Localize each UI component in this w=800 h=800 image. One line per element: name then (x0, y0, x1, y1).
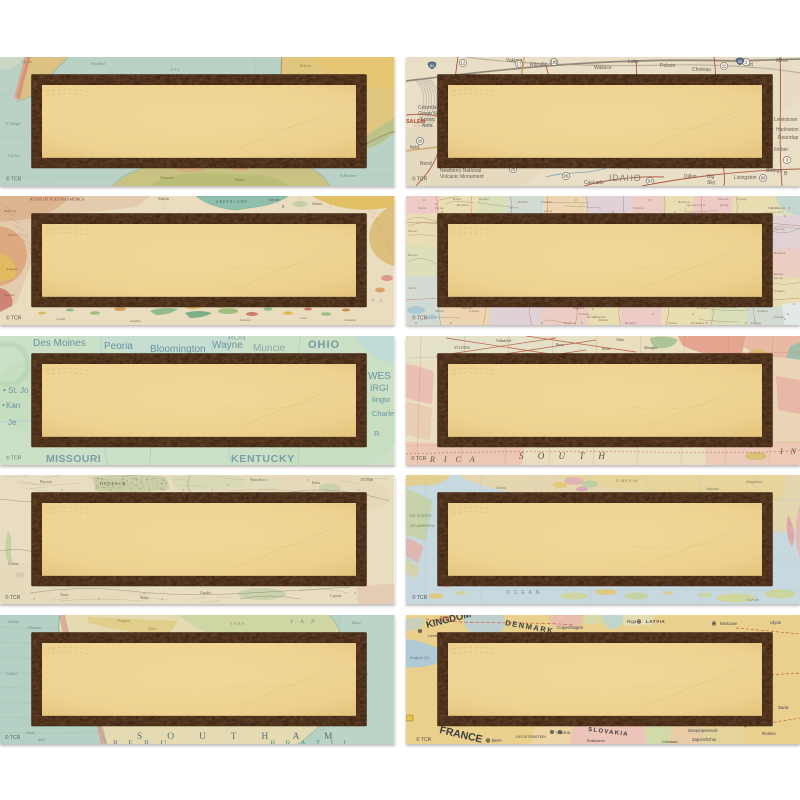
svg-text:Ft.Sask: Ft.Sask (579, 312, 589, 316)
svg-text:Qu Ap: Qu Ap (774, 276, 783, 280)
svg-text:Brandon: Brandon (564, 321, 576, 325)
svg-text:Dakar: Dakar (300, 63, 311, 68)
svg-text:Muncie: Muncie (253, 343, 286, 354)
svg-text:ED STATES: ED STATES (410, 513, 432, 518)
svg-text:Choteau: Choteau (692, 67, 711, 73)
svg-text:Selkirk: Selkirk (598, 318, 608, 322)
svg-text:Portage: Portage (737, 197, 748, 201)
svg-text:A T L: A T L (169, 67, 180, 72)
svg-text:Dnepropetrovsk: Dnepropetrovsk (688, 728, 718, 733)
svg-text:Callao: Callao (8, 153, 21, 158)
svg-text:90: 90 (738, 60, 742, 64)
svg-text:Portage: Portage (469, 309, 480, 313)
svg-text:Qu Ap: Qu Ap (687, 203, 696, 207)
svg-text:© TCR: © TCR (5, 734, 21, 741)
svg-text:Quito: Quito (22, 59, 33, 64)
svg-text:LATVIA: LATVIA (646, 619, 665, 624)
svg-text:Y A N: Y A N (290, 619, 318, 625)
svg-text:RUTAS DE NUESTRA AMERICA: RUTAS DE NUESTRA AMERICA (30, 198, 85, 202)
svg-text:Lac la: Lac la (408, 286, 417, 290)
svg-text:Estevan: Estevan (541, 200, 552, 204)
svg-text:Gulf de: Gulf de (746, 597, 760, 602)
svg-text:Billings: Billings (766, 168, 782, 174)
svg-text:Cuba: Cuba (300, 316, 308, 320)
svg-text:Moose: Moose (418, 206, 428, 210)
svg-text:Moose: Moose (408, 229, 418, 233)
svg-text:Charle: Charle (372, 409, 394, 418)
svg-text:Moose: Moose (668, 321, 678, 325)
svg-text:Estevan: Estevan (633, 206, 644, 210)
svg-text:Mexico: Mexico (8, 233, 19, 237)
svg-text:WES: WES (368, 371, 391, 382)
svg-text:RON: RON (228, 336, 246, 342)
svg-text:Roundup: Roundup (778, 135, 799, 141)
svg-text:OF AMERICA: OF AMERICA (410, 523, 435, 528)
svg-text:© TCR: © TCR (416, 736, 432, 743)
svg-text:Guid: Guid (26, 730, 35, 735)
svg-text:Islandia: Islandia (268, 198, 280, 202)
svg-text:ST LOUIS: ST LOUIS (454, 346, 470, 350)
svg-text:MISSOURI: MISSOURI (46, 453, 101, 465)
svg-text:Brandon: Brandon (625, 321, 637, 325)
svg-text:IDAHO: IDAHO (609, 173, 642, 183)
svg-text:Acapulco: Acapulco (6, 267, 19, 271)
svg-text:R I C A: R I C A (429, 455, 478, 464)
svg-text:Kiew: Kiew (312, 481, 320, 485)
svg-text:Kan: Kan (6, 401, 20, 410)
svg-text:Estevan: Estevan (774, 227, 785, 231)
svg-text:Rome: Rome (602, 347, 611, 351)
svg-text:Candia: Candia (200, 591, 211, 595)
svg-text:Yakutsk: Yakutsk (706, 487, 719, 491)
svg-text:Biscaya: Biscaya (40, 480, 52, 484)
svg-text:Bahia: Bahia (235, 177, 246, 182)
svg-text:P A: P A (372, 298, 384, 303)
svg-text:Livingston: Livingston (734, 175, 757, 181)
svg-text:Omsk: Omsk (496, 486, 506, 490)
svg-text:OHIO: OHIO (308, 339, 340, 351)
svg-text:Qu Ap: Qu Ap (720, 203, 729, 207)
svg-text:Riviere: Riviere (518, 200, 528, 204)
svg-text:Ulyan: Ulyan (770, 620, 782, 625)
svg-text:© TCR: © TCR (6, 175, 22, 182)
svg-text:St. Jo: St. Jo (8, 386, 29, 395)
svg-text:Tunis: Tunis (60, 593, 69, 597)
svg-text:Callao: Callao (6, 671, 17, 676)
svg-text:Manaos: Manaos (160, 175, 174, 180)
svg-text:Estevan: Estevan (718, 197, 729, 201)
svg-text:© TCR: © TCR (412, 594, 428, 601)
svg-text:Galap: Galap (8, 619, 18, 624)
svg-text:Magadan: Magadan (746, 480, 762, 484)
svg-text:95: 95 (563, 173, 568, 178)
svg-text:Canarias: Canarias (344, 318, 357, 322)
svg-text:S.Helena: S.Helena (340, 173, 357, 178)
svg-text:S I B E R I A: S I B E R I A (616, 479, 638, 483)
svg-text:Riga: Riga (627, 619, 637, 624)
svg-text:Maci: Maci (351, 620, 361, 625)
svg-text:Bahia de: Bahia de (4, 209, 16, 213)
svg-text:Bend: Bend (420, 161, 432, 167)
svg-text:12: 12 (460, 60, 465, 65)
svg-text:Azores: Azores (312, 202, 323, 206)
svg-text:Lisboa: Lisboa (8, 562, 19, 566)
svg-text:Y A N A: Y A N A (230, 621, 244, 626)
svg-text:Tulsa: Tulsa (616, 338, 624, 342)
svg-text:195: 195 (550, 59, 558, 64)
svg-text:Ritzville: Ritzville (530, 62, 547, 68)
svg-text:Sky: Sky (707, 180, 716, 186)
svg-text:Yorkton: Yorkton (774, 289, 785, 293)
svg-text:Chatam: Chatam (28, 625, 41, 630)
svg-text:Caribe: Caribe (56, 317, 66, 321)
svg-text:Zaporizhzhia: Zaporizhzhia (692, 737, 717, 742)
svg-text:Copenhagen: Copenhagen (557, 625, 584, 630)
svg-text:Bogota: Bogota (118, 618, 130, 623)
svg-text:Panama: Panama (4, 293, 15, 297)
svg-text:20: 20 (417, 138, 422, 143)
svg-text:Valladolid: Valladolid (496, 339, 511, 343)
svg-text:Cascade: Cascade (584, 180, 604, 186)
svg-text:Qu Ap: Qu Ap (435, 206, 444, 210)
svg-text:Malta: Malta (140, 596, 149, 600)
svg-text:90: 90 (760, 175, 765, 180)
svg-text:Des Moines: Des Moines (33, 338, 86, 349)
svg-text:Brandon: Brandon (457, 203, 469, 207)
svg-text:93: 93 (647, 178, 652, 183)
svg-text:I N: I N (779, 447, 799, 456)
svg-text:Battle: Battle (453, 197, 461, 201)
svg-text:Miles: Miles (776, 58, 788, 64)
svg-text:field: field (410, 145, 419, 151)
svg-text:LIECHTENSTEIN: LIECHTENSTEIN (516, 735, 546, 739)
svg-text:Quito: Quito (148, 626, 158, 631)
svg-text:OCEAN: OCEAN (506, 590, 543, 596)
svg-text:Cypern: Cypern (330, 594, 341, 598)
svg-text:Hudson: Hudson (158, 197, 169, 201)
svg-text:Volcanic Monument: Volcanic Monument (440, 174, 484, 180)
svg-text:B R A Z I L: B R A Z I L (270, 739, 352, 744)
svg-text:Polson: Polson (660, 63, 676, 69)
svg-text:Brandon: Brandon (774, 251, 786, 255)
svg-text:S O U T H: S O U T H (519, 451, 611, 461)
svg-text:Moose: Moose (435, 309, 445, 313)
svg-text:© TCR: © TCR (412, 175, 428, 182)
svg-text:Lac la: Lac la (697, 203, 706, 207)
svg-text:© TCR: © TCR (6, 315, 22, 322)
svg-text:P E R U: P E R U (113, 739, 171, 744)
svg-text:Riviere: Riviere (479, 197, 489, 201)
svg-text:Riviere: Riviere (774, 272, 784, 276)
svg-text:Yorkton: Yorkton (757, 309, 768, 313)
svg-text:Estevan: Estevan (768, 206, 779, 210)
svg-text:Portage: Portage (774, 315, 785, 319)
svg-text:Riviere: Riviere (408, 253, 418, 257)
svg-text:tingto: tingto (372, 395, 390, 404)
svg-text:Sarat: Sarat (778, 705, 789, 710)
svg-text:Moscow: Moscow (720, 621, 738, 626)
svg-text:GREENLAND: GREENLAND (216, 200, 248, 204)
svg-text:Warschau: Warschau (250, 478, 265, 482)
svg-text:© TCR: © TCR (411, 455, 427, 462)
svg-text:17: 17 (516, 61, 521, 66)
svg-text:Jamaica: Jamaica (240, 318, 251, 322)
svg-text:Lac la: Lac la (700, 321, 709, 325)
svg-text:Peoria: Peoria (104, 341, 133, 352)
svg-text:SALEM: SALEM (406, 119, 426, 125)
svg-text:11: 11 (721, 63, 726, 68)
svg-text:Memphis: Memphis (644, 346, 658, 350)
svg-text:Je: Je (8, 418, 17, 427)
svg-text:Bone: Bone (556, 343, 564, 347)
svg-text:Bratislava: Bratislava (587, 738, 605, 743)
svg-text:Lake: Lake (628, 59, 639, 65)
svg-text:English Ch.: English Ch. (410, 655, 430, 660)
svg-text:Lewistown: Lewistown (774, 117, 798, 123)
svg-text:R.Magd: R.Magd (5, 121, 21, 126)
svg-text:Portage: Portage (751, 321, 762, 325)
svg-text:84: 84 (430, 64, 434, 68)
svg-text:D E U T S C H: D E U T S C H (100, 481, 125, 486)
svg-text:© TCR: © TCR (412, 315, 428, 322)
svg-text:Bern: Bern (492, 738, 502, 743)
svg-text:dild: dild (38, 737, 45, 742)
svg-text:R: R (374, 429, 380, 438)
svg-text:Antillas: Antillas (130, 319, 141, 323)
svg-text:IRGI: IRGI (370, 383, 389, 393)
svg-text:...TED: ...TED (436, 615, 450, 620)
svg-text:© TCR: © TCR (6, 454, 22, 461)
svg-text:Harlowton: Harlowton (776, 127, 799, 133)
svg-text:Wallace: Wallace (594, 65, 612, 71)
svg-text:TAVRIS: TAVRIS (360, 478, 373, 482)
svg-text:Rostov: Rostov (762, 731, 776, 736)
svg-text:© TCR: © TCR (5, 594, 21, 601)
svg-text:Dillon: Dillon (684, 174, 697, 180)
svg-text:Chisinau: Chisinau (662, 739, 678, 744)
svg-text:Finber: Finber (774, 147, 789, 153)
svg-text:Trinidad: Trinidad (90, 61, 106, 66)
svg-text:KENTUCKY: KENTUCKY (231, 453, 295, 465)
